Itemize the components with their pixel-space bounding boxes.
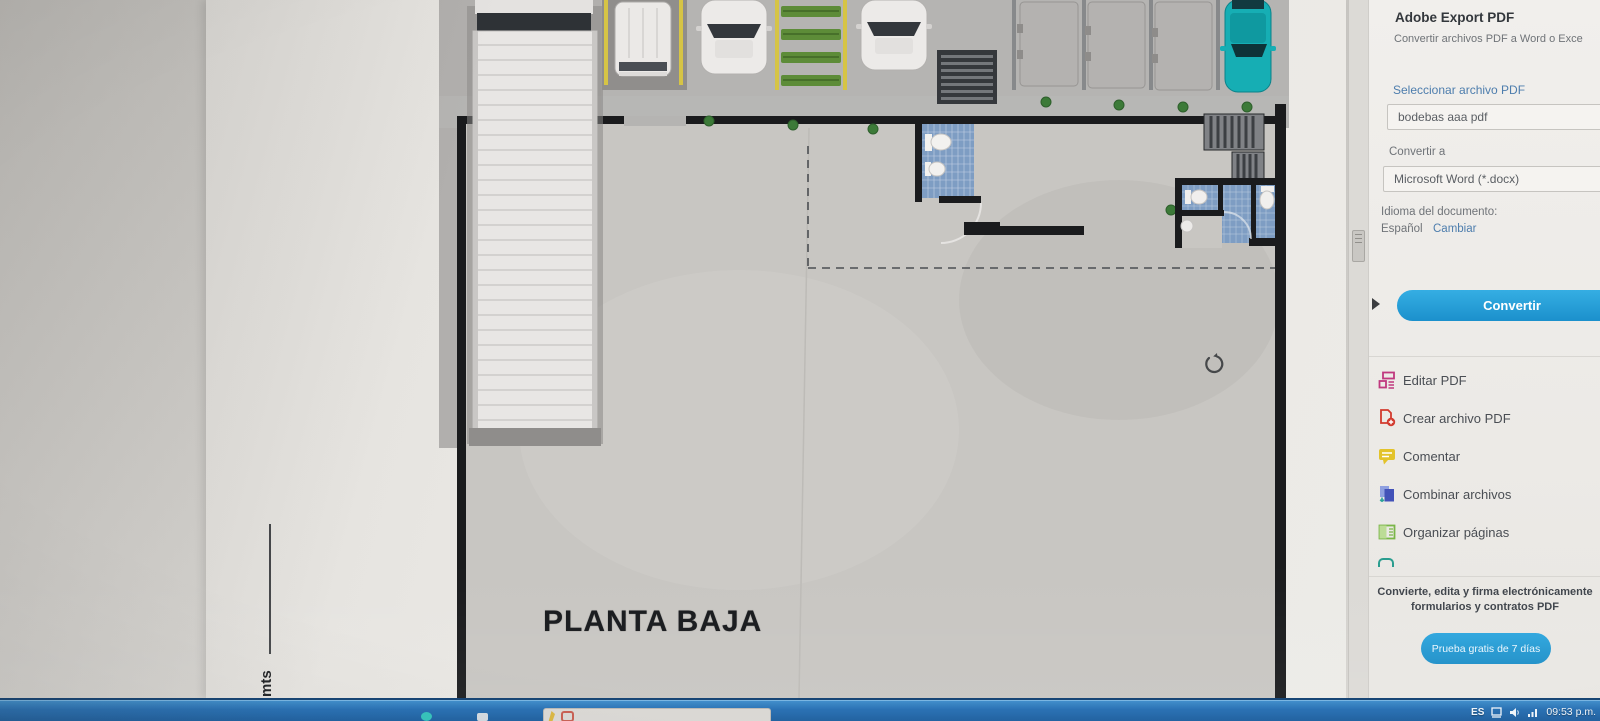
taskbar-app-icon-white[interactable]: [477, 713, 488, 721]
tools-list: Editar PDF Crear archivo PDF: [1369, 362, 1600, 552]
photographed-monitor-screen: PLANTA BAJA mts Adobe Export PDF Convert…: [0, 0, 1600, 721]
app-logo-icon: [561, 711, 574, 721]
tool-label: Combinar archivos: [1403, 487, 1511, 502]
fill-sign-partial-icon: [1378, 558, 1394, 567]
tool-label: Editar PDF: [1403, 373, 1467, 388]
pdf-page: PLANTA BAJA mts: [206, 0, 1346, 698]
exterior-stairs: [937, 50, 997, 104]
tool-item-edit-pdf[interactable]: Editar PDF: [1369, 362, 1600, 400]
entrance-opening: [624, 116, 686, 126]
tool-item-comment[interactable]: Comentar: [1369, 438, 1600, 476]
parked-car-teal: [1220, 0, 1276, 92]
tray-flag-icon[interactable]: [1491, 707, 1502, 718]
format-dropdown[interactable]: Microsoft Word (*.docx): [1383, 166, 1600, 192]
language-value: Español: [1381, 223, 1423, 235]
taskbar-window-preview[interactable]: [543, 708, 771, 721]
panel-title: Adobe Export PDF: [1395, 10, 1514, 25]
scale-line: [269, 524, 271, 654]
taskbar-highlight: [0, 700, 1600, 701]
pen-icon: [548, 711, 555, 721]
combine-files-icon: [1378, 485, 1396, 503]
select-file-link[interactable]: Seleccionar archivo PDF: [1393, 83, 1525, 97]
floor-plan: [439, 0, 1289, 698]
free-trial-button[interactable]: Prueba gratis de 7 días: [1421, 633, 1551, 664]
plan-title: PLANTA BAJA: [543, 605, 803, 639]
rotate-cursor-icon: [1202, 352, 1226, 378]
selected-file-box[interactable]: bodebas aaa pdf: [1387, 104, 1600, 130]
tool-item-combine-files[interactable]: Combinar archivos: [1369, 476, 1600, 514]
tool-label: Comentar: [1403, 449, 1460, 464]
collapse-panel-icon[interactable]: [1372, 298, 1380, 310]
parked-car-white-2: [856, 0, 932, 70]
tool-label: Organizar páginas: [1403, 525, 1509, 540]
edit-pdf-icon: [1378, 371, 1396, 389]
taskbar-app-icon-teal[interactable]: [421, 712, 432, 721]
tool-item-create-pdf[interactable]: Crear archivo PDF: [1369, 400, 1600, 438]
bathroom-2: [1175, 178, 1275, 248]
panel-divider-2: [1369, 576, 1600, 577]
taskbar-clock: 09:53 p.m.: [1546, 706, 1596, 718]
floor-plan-drawing: [439, 0, 1289, 698]
empty-parking-stalls: [1012, 0, 1220, 90]
acrobat-document-canvas: PLANTA BAJA mts: [0, 0, 1348, 698]
panel-subtitle: Convertir archivos PDF a Word o Exce: [1394, 33, 1600, 45]
windows-taskbar: ES 09:53 p.m.: [0, 698, 1600, 721]
organize-pages-icon: [1378, 523, 1396, 541]
promo-text: Convierte, edita y firma electrónicament…: [1369, 585, 1600, 615]
parked-car-white-1: [696, 0, 772, 74]
tray-speaker-icon[interactable]: [1509, 707, 1520, 718]
create-pdf-icon: [1378, 409, 1396, 427]
truck-trailer: [467, 0, 603, 446]
tray-network-icon[interactable]: [1527, 707, 1539, 718]
tool-label: Crear archivo PDF: [1403, 411, 1511, 426]
language-change-link[interactable]: Cambiar: [1433, 223, 1476, 235]
tool-item-organize-pages[interactable]: Organizar páginas: [1369, 514, 1600, 552]
system-tray: ES 09:53 p.m.: [1471, 704, 1596, 720]
promo-line-1: Convierte, edita y firma electrónicament…: [1369, 585, 1600, 600]
scrollbar-thumb[interactable]: [1352, 230, 1365, 262]
vertical-scrollbar[interactable]: [1348, 0, 1368, 698]
parking-stall-van: [602, 0, 687, 90]
scale-units-label: mts: [258, 645, 275, 697]
convert-to-label: Convertir a: [1389, 146, 1445, 158]
language-label: Idioma del documento:: [1381, 206, 1497, 218]
convert-button[interactable]: Convertir: [1397, 290, 1600, 321]
panel-divider: [1369, 356, 1600, 357]
export-pdf-panel: Adobe Export PDF Convertir archivos PDF …: [1368, 0, 1600, 698]
promo-line-2: formularios y contratos PDF: [1369, 600, 1600, 615]
language-indicator[interactable]: ES: [1471, 707, 1484, 718]
comment-icon: [1378, 447, 1396, 465]
